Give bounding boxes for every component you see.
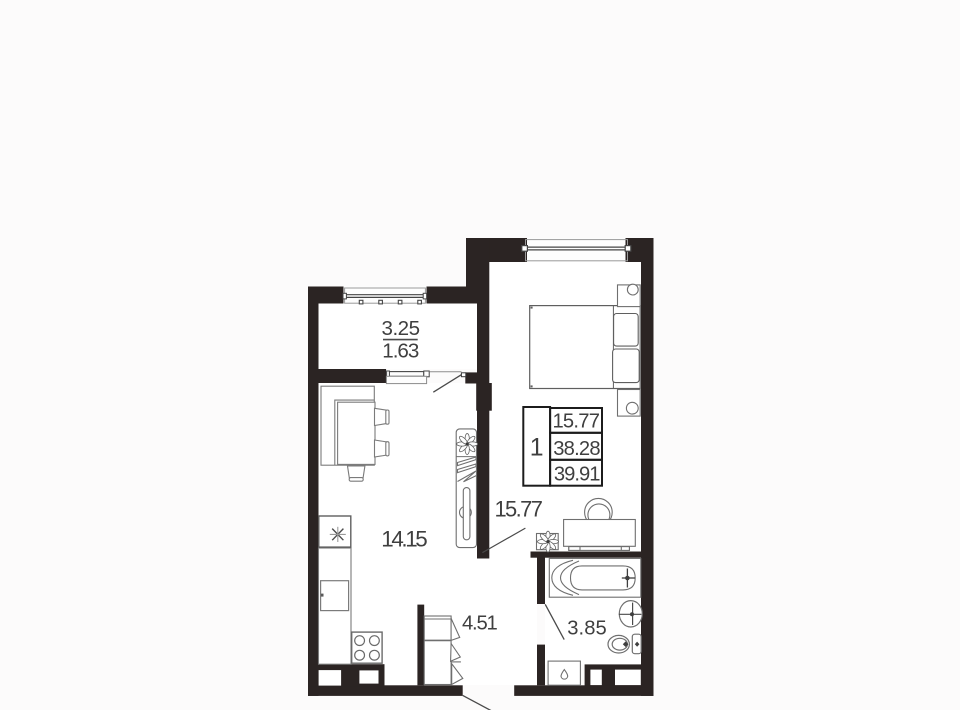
svg-text:15.77: 15.77 xyxy=(552,410,600,432)
svg-text:15.77: 15.77 xyxy=(494,496,543,521)
svg-text:1.63: 1.63 xyxy=(382,339,419,362)
svg-text:14.15: 14.15 xyxy=(381,526,428,551)
svg-text:3.25: 3.25 xyxy=(382,317,421,340)
svg-text:1: 1 xyxy=(530,435,544,462)
svg-text:3.85: 3.85 xyxy=(567,618,607,640)
svg-text:39.91: 39.91 xyxy=(554,463,601,485)
svg-text:4.51: 4.51 xyxy=(462,613,498,635)
svg-text:38.28: 38.28 xyxy=(553,438,600,460)
